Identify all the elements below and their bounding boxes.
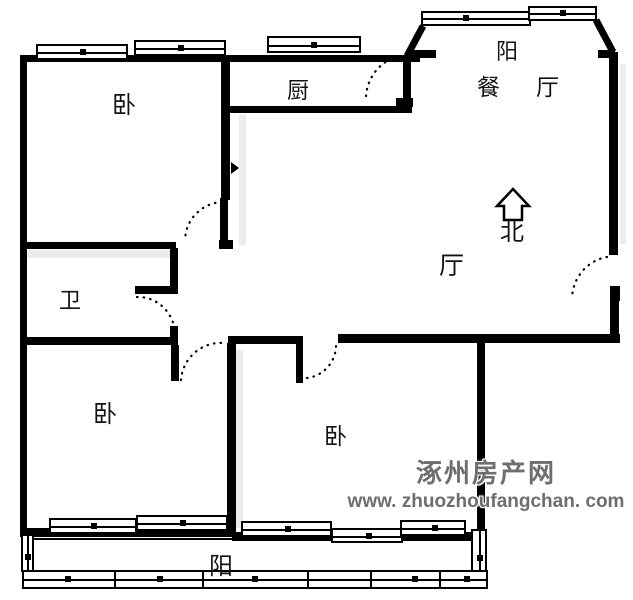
door-arc-kitchen — [366, 59, 391, 101]
watermark-site-url: www. zhuozhoufangchan. com — [341, 491, 631, 513]
door-arc-bedroom1 — [185, 202, 222, 241]
room-label-bedroom-bottom-left: 卧 — [93, 403, 117, 427]
room-label-balcony-top: 阳 — [496, 41, 518, 63]
compass-north-label: 北 — [500, 221, 524, 245]
room-label-bathroom: 卫 — [59, 290, 81, 312]
room-label-dining: 餐厅 — [477, 76, 595, 99]
door-arc-bedroom2 — [181, 343, 224, 380]
watermark-site-name: 涿州房产网 — [341, 453, 631, 490]
door-arc-entrance — [572, 257, 607, 299]
room-label-bedroom-bottom-middle: 卧 — [324, 425, 347, 448]
room-label-kitchen: 厨 — [287, 80, 309, 102]
room-label-hall: 厅 — [439, 254, 464, 279]
door-arc-bedroom3 — [307, 346, 336, 378]
room-label-bedroom-top-left: 卧 — [112, 94, 136, 118]
door-arc-bathroom — [137, 297, 175, 333]
watermark: 涿州房产网 www. zhuozhoufangchan. com — [341, 453, 631, 513]
north-arrow-icon — [497, 189, 529, 220]
floor-plan: 卧 厨 阳 餐厅 北 厅 卫 卧 卧 阳 涿州房产网 www. zhuozhou… — [0, 0, 633, 600]
wall-notch — [231, 162, 239, 174]
room-label-balcony-bottom: 阳 — [209, 555, 233, 579]
wall-balcony-diagonal-left — [407, 26, 423, 56]
wall-balcony-diagonal-right — [596, 20, 613, 52]
